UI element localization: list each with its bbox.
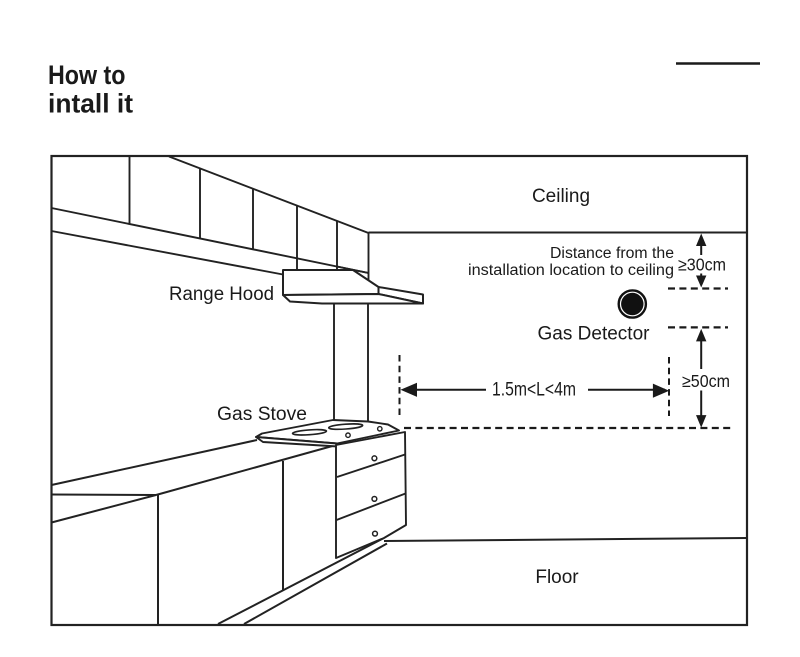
svg-text:installation location to ceili: installation location to ceiling — [468, 262, 674, 279]
svg-text:Range Hood: Range Hood — [169, 284, 274, 305]
svg-text:intall it: intall it — [48, 89, 133, 119]
svg-text:Gas Detector: Gas Detector — [538, 324, 651, 345]
svg-text:Distance from the: Distance from the — [550, 245, 674, 262]
svg-text:Gas Stove: Gas Stove — [217, 404, 307, 425]
svg-text:Ceiling: Ceiling — [532, 186, 590, 207]
svg-text:1.5m<L<4m: 1.5m<L<4m — [492, 380, 576, 401]
svg-text:How to: How to — [48, 60, 126, 90]
svg-text:Floor: Floor — [535, 567, 579, 588]
svg-text:≥50cm: ≥50cm — [682, 371, 730, 391]
svg-text:≥30cm: ≥30cm — [678, 255, 726, 275]
